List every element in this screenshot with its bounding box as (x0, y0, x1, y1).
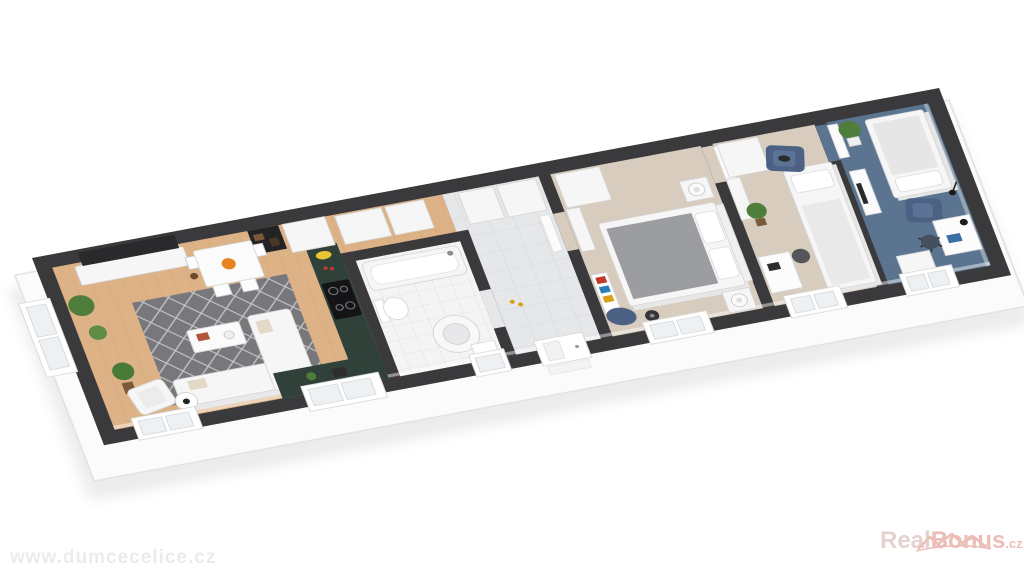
brand-tld: .cz (1005, 536, 1022, 551)
site-watermark: www.dumcecelice.cz (10, 547, 216, 569)
floorplan-render (0, 0, 1024, 576)
brand-watermark: RealBonus.cz (880, 532, 1020, 553)
floor-plan-screenshot: www.dumcecelice.cz RealBonus.cz (0, 0, 1024, 576)
blue-armchair (766, 145, 805, 172)
realbonus-roofs-icon (914, 532, 992, 552)
blue-armchair (905, 198, 943, 222)
